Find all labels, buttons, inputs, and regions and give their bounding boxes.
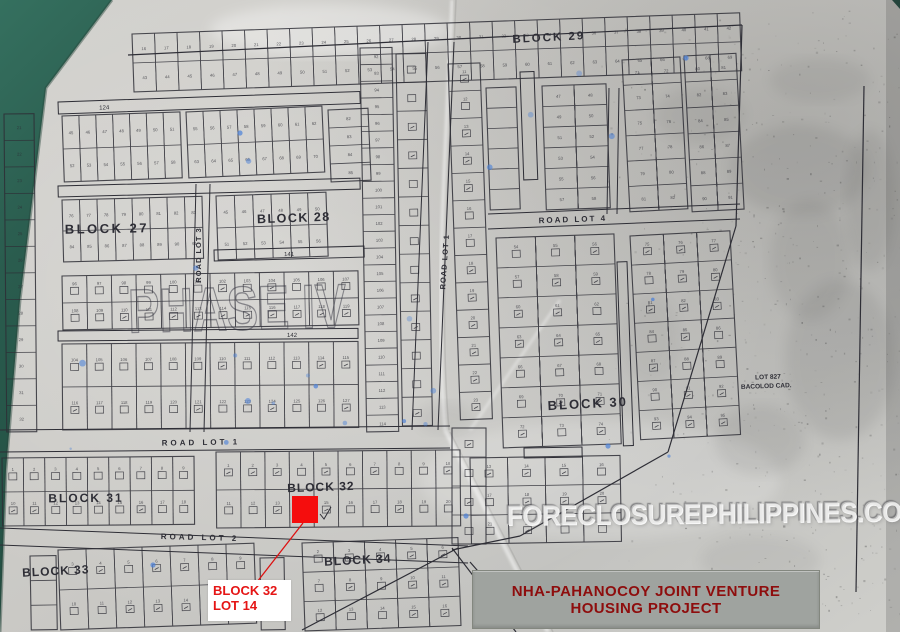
svg-text:15: 15 bbox=[411, 604, 417, 609]
svg-text:65: 65 bbox=[595, 331, 601, 336]
svg-text:63: 63 bbox=[517, 334, 523, 339]
svg-text:12: 12 bbox=[251, 501, 256, 506]
svg-text:17: 17 bbox=[164, 45, 170, 50]
svg-text:69: 69 bbox=[519, 394, 525, 399]
block-label: BLOCK 28 bbox=[257, 210, 331, 227]
svg-text:45: 45 bbox=[69, 130, 75, 135]
svg-text:21: 21 bbox=[488, 521, 493, 526]
svg-text:56: 56 bbox=[137, 161, 143, 166]
svg-text:67: 67 bbox=[557, 363, 563, 368]
svg-text:14: 14 bbox=[524, 463, 529, 468]
svg-text:112: 112 bbox=[268, 356, 275, 361]
svg-text:18: 18 bbox=[469, 261, 475, 266]
svg-text:51: 51 bbox=[557, 135, 563, 140]
svg-text:43: 43 bbox=[142, 75, 148, 80]
svg-text:94: 94 bbox=[374, 87, 379, 92]
svg-text:117: 117 bbox=[96, 400, 103, 405]
svg-text:25: 25 bbox=[344, 39, 350, 44]
svg-text:16: 16 bbox=[442, 603, 448, 608]
svg-text:15: 15 bbox=[466, 178, 472, 183]
svg-text:84: 84 bbox=[70, 244, 75, 249]
svg-text:55: 55 bbox=[298, 239, 304, 244]
svg-text:109: 109 bbox=[194, 356, 202, 361]
svg-text:103: 103 bbox=[376, 238, 384, 243]
svg-text:126: 126 bbox=[318, 398, 326, 403]
svg-text:30: 30 bbox=[19, 364, 24, 369]
svg-text:69: 69 bbox=[727, 55, 733, 60]
svg-text:18: 18 bbox=[397, 499, 402, 504]
svg-text:106: 106 bbox=[377, 288, 385, 293]
svg-text:13: 13 bbox=[349, 607, 355, 612]
svg-text:16: 16 bbox=[141, 46, 147, 51]
svg-text:52: 52 bbox=[345, 68, 351, 73]
callout-block-text: BLOCK 32 bbox=[213, 583, 291, 598]
svg-text:12: 12 bbox=[127, 599, 133, 604]
svg-text:127: 127 bbox=[343, 398, 351, 403]
svg-text:110: 110 bbox=[219, 356, 226, 361]
svg-text:120: 120 bbox=[170, 399, 178, 404]
svg-text:81: 81 bbox=[156, 211, 161, 216]
svg-text:54: 54 bbox=[279, 240, 285, 245]
svg-text:62: 62 bbox=[570, 60, 576, 65]
svg-text:22: 22 bbox=[276, 41, 282, 46]
svg-text:80: 80 bbox=[139, 211, 144, 216]
svg-text:73: 73 bbox=[559, 423, 565, 428]
photo-stage: 1241411421617181920212223242526272829303… bbox=[0, 0, 900, 632]
svg-text:88: 88 bbox=[140, 242, 145, 247]
svg-text:105: 105 bbox=[376, 271, 384, 276]
svg-text:55: 55 bbox=[553, 243, 559, 248]
svg-text:58: 58 bbox=[480, 63, 486, 68]
svg-text:19: 19 bbox=[562, 491, 567, 496]
svg-text:49: 49 bbox=[136, 128, 142, 133]
svg-text:60: 60 bbox=[516, 304, 522, 309]
svg-text:19: 19 bbox=[209, 44, 215, 49]
svg-text:54: 54 bbox=[590, 155, 596, 160]
svg-text:104: 104 bbox=[71, 357, 79, 362]
svg-text:50: 50 bbox=[589, 113, 595, 118]
svg-text:112: 112 bbox=[379, 388, 386, 393]
svg-text:18: 18 bbox=[525, 492, 530, 497]
svg-text:58: 58 bbox=[171, 160, 177, 165]
svg-text:99: 99 bbox=[376, 171, 381, 176]
svg-text:83: 83 bbox=[191, 210, 196, 215]
svg-text:116: 116 bbox=[71, 400, 78, 405]
svg-text:24: 24 bbox=[321, 40, 327, 45]
svg-text:96: 96 bbox=[375, 121, 380, 126]
svg-text:12: 12 bbox=[463, 96, 469, 101]
svg-text:52: 52 bbox=[243, 241, 249, 246]
project-title-line2: HOUSING PROJECT bbox=[473, 600, 819, 617]
road-label: ROAD LOT 3 bbox=[194, 227, 203, 282]
svg-text:47: 47 bbox=[556, 94, 562, 99]
walkway-number: 124 bbox=[99, 105, 110, 111]
svg-text:29: 29 bbox=[19, 337, 24, 342]
svg-text:54: 54 bbox=[103, 162, 109, 167]
svg-text:18: 18 bbox=[186, 44, 192, 49]
svg-text:20: 20 bbox=[446, 499, 451, 504]
svg-text:125: 125 bbox=[293, 398, 301, 403]
svg-text:58: 58 bbox=[592, 196, 598, 201]
svg-text:78: 78 bbox=[104, 212, 109, 217]
svg-text:57: 57 bbox=[515, 274, 521, 279]
svg-text:51: 51 bbox=[170, 127, 176, 132]
svg-text:104: 104 bbox=[376, 254, 384, 259]
svg-text:32: 32 bbox=[19, 417, 24, 422]
svg-text:89: 89 bbox=[157, 242, 162, 247]
watermark-phase-iv: PHASE IV bbox=[127, 272, 347, 347]
svg-text:46: 46 bbox=[242, 209, 248, 214]
svg-text:52: 52 bbox=[70, 163, 76, 168]
svg-text:37: 37 bbox=[614, 29, 620, 34]
svg-text:48: 48 bbox=[255, 71, 261, 76]
block-label: BLOCK 32 bbox=[287, 479, 355, 495]
svg-text:45: 45 bbox=[223, 210, 229, 215]
svg-text:28: 28 bbox=[18, 311, 23, 316]
svg-text:107: 107 bbox=[145, 357, 153, 362]
svg-text:57: 57 bbox=[560, 197, 566, 202]
highlighted-lot-square bbox=[292, 496, 318, 523]
svg-text:52: 52 bbox=[589, 134, 595, 139]
svg-text:14: 14 bbox=[380, 605, 386, 610]
svg-text:98: 98 bbox=[121, 280, 126, 285]
svg-text:22: 22 bbox=[17, 152, 22, 157]
svg-text:42: 42 bbox=[726, 26, 732, 31]
svg-text:13: 13 bbox=[275, 500, 280, 505]
svg-text:61: 61 bbox=[547, 61, 553, 66]
svg-text:64: 64 bbox=[556, 333, 562, 338]
svg-text:55: 55 bbox=[120, 161, 126, 166]
svg-text:56: 56 bbox=[435, 65, 441, 70]
svg-text:48: 48 bbox=[119, 128, 125, 133]
svg-text:96: 96 bbox=[72, 281, 77, 286]
svg-text:53: 53 bbox=[261, 240, 267, 245]
svg-text:14: 14 bbox=[183, 597, 189, 602]
svg-text:97: 97 bbox=[375, 137, 380, 142]
svg-text:108: 108 bbox=[377, 321, 385, 326]
svg-text:85: 85 bbox=[87, 244, 92, 249]
svg-text:17: 17 bbox=[487, 493, 492, 498]
svg-text:25: 25 bbox=[18, 231, 23, 236]
svg-text:101: 101 bbox=[375, 204, 383, 209]
svg-text:16: 16 bbox=[467, 206, 473, 211]
svg-text:105: 105 bbox=[96, 357, 104, 362]
svg-text:56: 56 bbox=[591, 175, 597, 180]
svg-text:17: 17 bbox=[373, 500, 378, 505]
svg-text:72: 72 bbox=[520, 424, 526, 429]
svg-text:113: 113 bbox=[293, 355, 300, 360]
highlight-callout-box: BLOCK 32 LOT 14 bbox=[208, 580, 291, 621]
svg-text:19: 19 bbox=[470, 288, 476, 293]
svg-text:66: 66 bbox=[518, 364, 524, 369]
svg-text:108: 108 bbox=[71, 308, 79, 313]
svg-text:109: 109 bbox=[378, 338, 386, 343]
svg-text:115: 115 bbox=[342, 355, 349, 360]
svg-text:107: 107 bbox=[377, 304, 385, 309]
svg-text:100: 100 bbox=[375, 188, 383, 193]
svg-text:98: 98 bbox=[376, 154, 381, 159]
svg-text:106: 106 bbox=[120, 357, 128, 362]
svg-text:51: 51 bbox=[322, 69, 328, 74]
svg-text:19: 19 bbox=[421, 499, 426, 504]
svg-text:82: 82 bbox=[174, 210, 179, 215]
project-title-line1: NHA-PAHANOCOY JOINT VENTURE bbox=[473, 583, 819, 600]
svg-text:119: 119 bbox=[145, 400, 152, 405]
svg-text:58: 58 bbox=[554, 273, 560, 278]
svg-text:56: 56 bbox=[592, 241, 598, 246]
svg-text:77: 77 bbox=[86, 213, 91, 218]
svg-text:11: 11 bbox=[32, 501, 37, 506]
svg-text:111: 111 bbox=[244, 356, 251, 361]
svg-text:114: 114 bbox=[318, 355, 325, 360]
svg-text:20: 20 bbox=[600, 491, 605, 496]
landmark-lot827-line1: LOT 827 bbox=[755, 374, 781, 382]
watermark-foreclosurephilippines: FORECLOSUREPHILIPPINES.COM bbox=[506, 495, 896, 533]
svg-text:64: 64 bbox=[615, 58, 621, 63]
svg-text:62: 62 bbox=[594, 301, 600, 306]
svg-text:44: 44 bbox=[165, 74, 171, 79]
svg-text:87: 87 bbox=[122, 243, 127, 248]
svg-text:109: 109 bbox=[96, 308, 104, 313]
svg-text:10: 10 bbox=[410, 575, 416, 580]
svg-text:53: 53 bbox=[558, 156, 564, 161]
svg-text:60: 60 bbox=[525, 62, 531, 67]
svg-text:12: 12 bbox=[318, 608, 324, 613]
svg-text:49: 49 bbox=[277, 70, 283, 75]
svg-text:17: 17 bbox=[160, 500, 165, 505]
svg-text:15: 15 bbox=[562, 463, 567, 468]
plat-map-drawing: 1241411421617181920212223242526272829303… bbox=[0, 0, 900, 632]
svg-text:16: 16 bbox=[139, 500, 144, 505]
svg-text:45: 45 bbox=[187, 73, 193, 78]
svg-text:31: 31 bbox=[479, 34, 485, 39]
svg-text:95: 95 bbox=[375, 104, 380, 109]
svg-text:59: 59 bbox=[593, 271, 599, 276]
svg-text:61: 61 bbox=[555, 303, 561, 308]
svg-text:93: 93 bbox=[374, 71, 379, 76]
block-label: BLOCK 31 bbox=[48, 491, 123, 506]
svg-text:10: 10 bbox=[446, 461, 451, 466]
svg-text:121: 121 bbox=[195, 399, 203, 404]
svg-text:114: 114 bbox=[379, 421, 386, 426]
svg-text:53: 53 bbox=[367, 67, 373, 72]
svg-text:23: 23 bbox=[17, 178, 22, 183]
svg-text:74: 74 bbox=[598, 421, 604, 426]
project-title-box: NHA-PAHANOCOY JOINT VENTURE HOUSING PROJ… bbox=[472, 570, 820, 629]
svg-text:79: 79 bbox=[121, 212, 126, 217]
photographed-subdivision-plat: { "title_box": { "line1": "NHA-PAHANOCOY… bbox=[0, 0, 900, 632]
svg-text:68: 68 bbox=[596, 361, 602, 366]
svg-text:111: 111 bbox=[378, 371, 385, 376]
svg-text:10: 10 bbox=[71, 601, 77, 606]
svg-text:57: 57 bbox=[154, 160, 160, 165]
svg-text:59: 59 bbox=[502, 62, 508, 67]
svg-text:92: 92 bbox=[374, 54, 379, 59]
svg-text:26: 26 bbox=[18, 258, 23, 263]
svg-text:47: 47 bbox=[232, 72, 238, 77]
svg-text:90: 90 bbox=[175, 241, 180, 246]
svg-text:13: 13 bbox=[155, 598, 161, 603]
svg-text:16: 16 bbox=[599, 462, 604, 467]
block-label: BLOCK 27 bbox=[65, 220, 150, 236]
svg-text:14: 14 bbox=[465, 151, 471, 156]
svg-text:49: 49 bbox=[557, 114, 563, 119]
svg-text:97: 97 bbox=[97, 281, 102, 286]
svg-text:102: 102 bbox=[376, 221, 384, 226]
svg-text:46: 46 bbox=[85, 130, 91, 135]
svg-text:56: 56 bbox=[316, 238, 322, 243]
svg-text:11: 11 bbox=[226, 501, 231, 506]
svg-text:31: 31 bbox=[19, 390, 24, 395]
svg-text:24: 24 bbox=[17, 205, 22, 210]
svg-text:63: 63 bbox=[592, 59, 598, 64]
svg-text:21: 21 bbox=[254, 42, 260, 47]
svg-text:10: 10 bbox=[11, 501, 16, 506]
svg-text:23: 23 bbox=[299, 40, 305, 45]
svg-text:13: 13 bbox=[464, 124, 470, 129]
svg-text:16: 16 bbox=[348, 500, 353, 505]
svg-text:47: 47 bbox=[102, 129, 108, 134]
svg-text:21: 21 bbox=[17, 125, 22, 130]
svg-text:27: 27 bbox=[18, 284, 23, 289]
svg-text:76: 76 bbox=[69, 213, 74, 218]
svg-text:122: 122 bbox=[219, 399, 227, 404]
svg-text:21: 21 bbox=[471, 343, 477, 348]
svg-text:50: 50 bbox=[153, 127, 159, 132]
svg-text:110: 110 bbox=[378, 354, 385, 359]
callout-lot-text: LOT 14 bbox=[213, 598, 291, 613]
svg-text:20: 20 bbox=[470, 315, 476, 320]
svg-text:53: 53 bbox=[87, 162, 93, 167]
svg-text:50: 50 bbox=[300, 69, 306, 74]
svg-text:23: 23 bbox=[473, 397, 479, 402]
svg-text:20: 20 bbox=[231, 43, 237, 48]
svg-text:22: 22 bbox=[472, 370, 478, 375]
svg-text:18: 18 bbox=[181, 499, 186, 504]
svg-text:13: 13 bbox=[487, 464, 492, 469]
svg-text:108: 108 bbox=[170, 356, 178, 361]
svg-text:118: 118 bbox=[121, 400, 128, 405]
svg-text:54: 54 bbox=[514, 244, 520, 249]
svg-text:113: 113 bbox=[379, 405, 386, 410]
svg-text:55: 55 bbox=[559, 176, 565, 181]
svg-text:86: 86 bbox=[105, 243, 110, 248]
svg-text:15: 15 bbox=[324, 500, 329, 505]
svg-text:46: 46 bbox=[210, 73, 216, 78]
svg-text:17: 17 bbox=[468, 233, 474, 238]
svg-text:51: 51 bbox=[224, 242, 230, 247]
svg-text:48: 48 bbox=[588, 93, 594, 98]
